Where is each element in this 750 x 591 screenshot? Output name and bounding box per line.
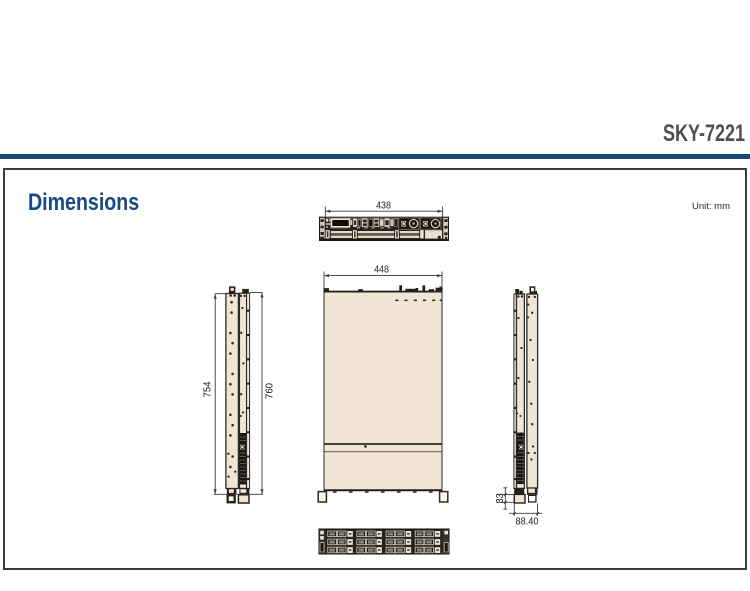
svg-text:88.40: 88.40 (516, 516, 539, 527)
svg-text:33: 33 (495, 493, 506, 503)
svg-text:754: 754 (203, 381, 214, 397)
svg-text:438: 438 (376, 200, 391, 211)
svg-text:448: 448 (374, 264, 389, 275)
svg-text:760: 760 (265, 383, 276, 399)
